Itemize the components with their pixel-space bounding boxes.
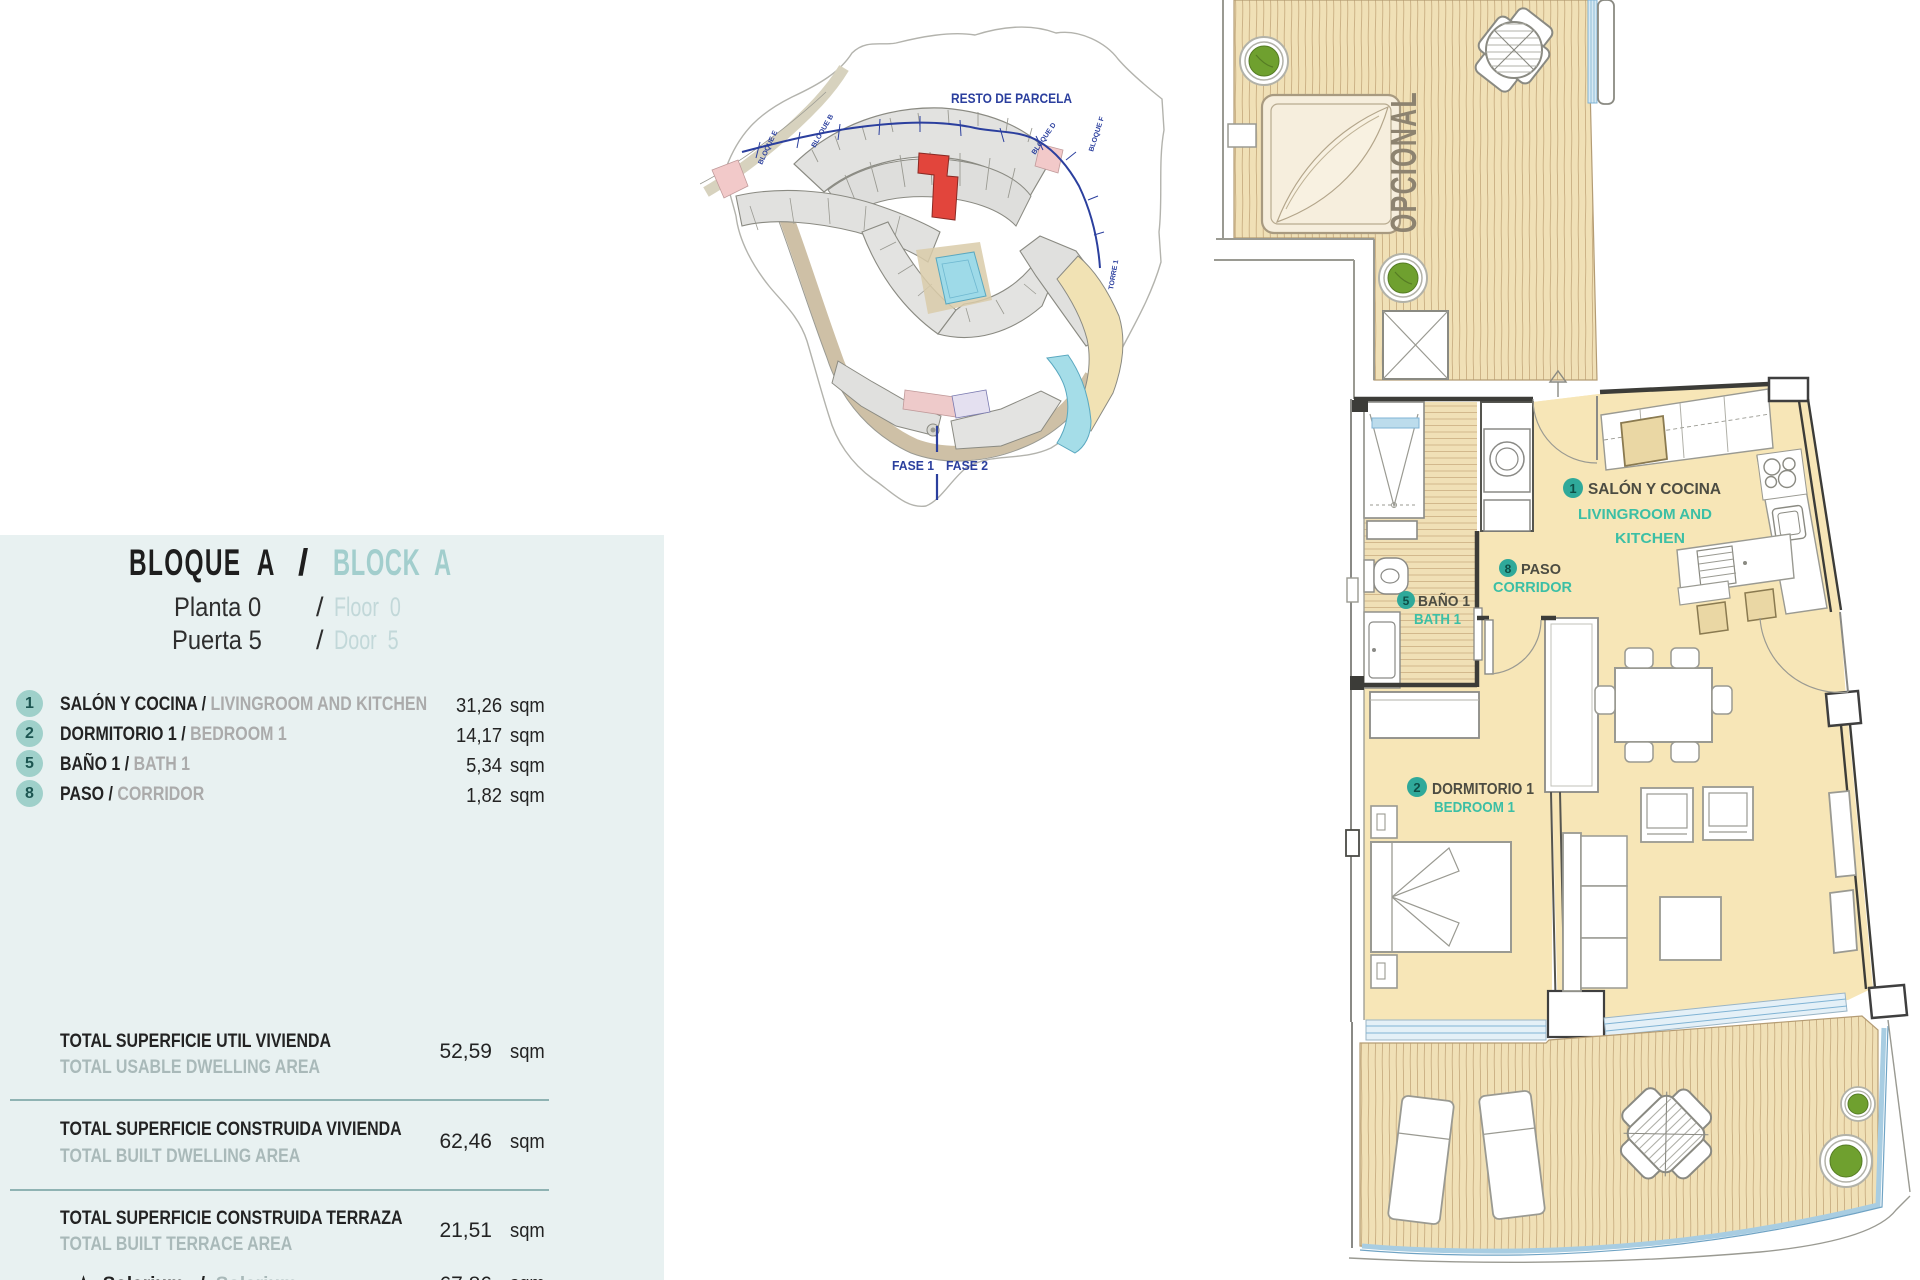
- svg-text:FASE 2: FASE 2: [946, 458, 988, 473]
- svg-text:PASO: PASO: [1521, 561, 1561, 578]
- svg-text:FASE 1: FASE 1: [892, 458, 934, 473]
- svg-text:DORMITORIO 1: DORMITORIO 1: [1432, 781, 1534, 798]
- svg-text:BEDROOM 1: BEDROOM 1: [1434, 799, 1515, 816]
- svg-text:KITCHEN: KITCHEN: [1615, 530, 1685, 547]
- svg-text:RESTO DE PARCELA: RESTO DE PARCELA: [951, 90, 1072, 106]
- svg-text:BATH 1: BATH 1: [1414, 611, 1461, 628]
- svg-text:SALÓN Y COCINA: SALÓN Y COCINA: [1588, 480, 1721, 498]
- svg-text:CORRIDOR: CORRIDOR: [1493, 579, 1572, 596]
- svg-text:LIVINGROOM AND: LIVINGROOM AND: [1578, 506, 1712, 523]
- svg-text:1: 1: [1569, 481, 1576, 496]
- svg-text:2: 2: [1413, 780, 1420, 795]
- svg-text:8: 8: [1505, 562, 1512, 576]
- svg-text:BAÑO 1: BAÑO 1: [1418, 592, 1470, 610]
- svg-text:OPCIONAL: OPCIONAL: [1383, 91, 1424, 233]
- svg-text:5: 5: [1403, 594, 1410, 608]
